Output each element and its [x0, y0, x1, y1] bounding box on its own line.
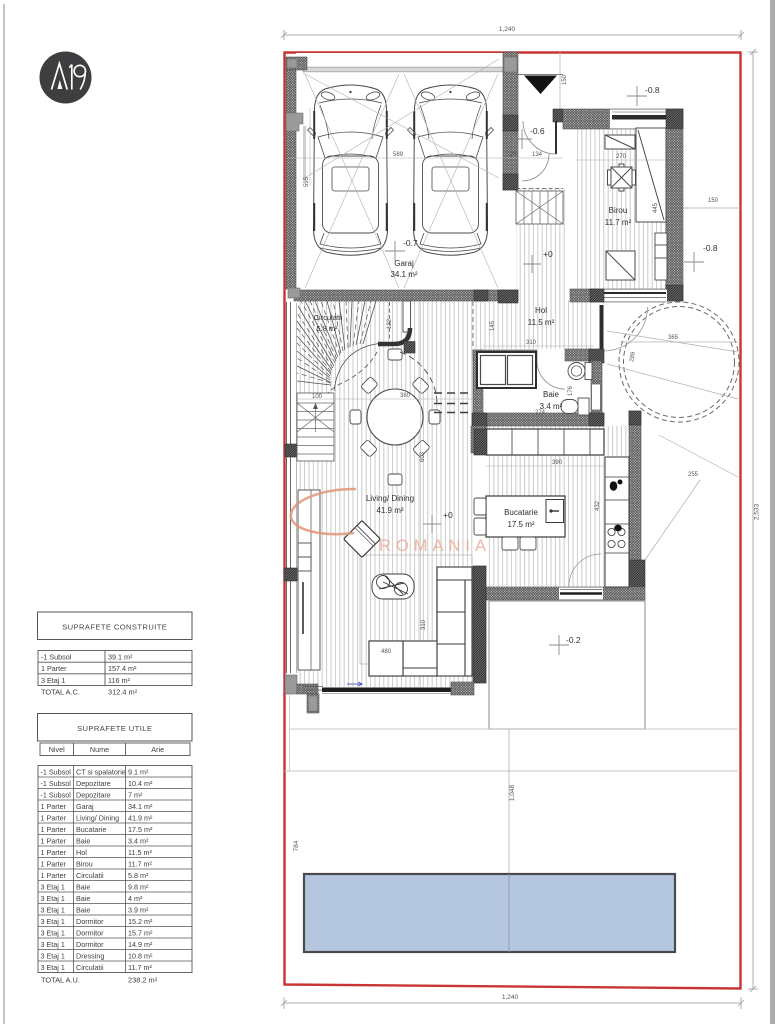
- svg-text:-0.7: -0.7: [403, 238, 418, 248]
- svg-text:Nume: Nume: [90, 745, 109, 754]
- svg-text:-1 Subsol: -1 Subsol: [41, 779, 72, 788]
- svg-text:Dormitor: Dormitor: [76, 928, 104, 937]
- svg-text:11.5 m²: 11.5 m²: [128, 848, 152, 857]
- svg-text:Nivel: Nivel: [49, 745, 65, 754]
- svg-text:3 Etaj 1: 3 Etaj 1: [41, 963, 65, 972]
- svg-text:Hol: Hol: [76, 848, 87, 857]
- svg-text:4 m²: 4 m²: [128, 894, 143, 903]
- svg-text:10.8 m²: 10.8 m²: [128, 951, 153, 960]
- svg-text:Baie: Baie: [76, 894, 90, 903]
- svg-text:3 Etaj 1: 3 Etaj 1: [41, 894, 65, 903]
- svg-text:Circulatii: Circulatii: [76, 963, 104, 972]
- svg-text:100: 100: [312, 394, 323, 400]
- svg-text:15.7 m²: 15.7 m²: [128, 928, 153, 937]
- svg-text:274: 274: [535, 410, 546, 416]
- svg-text:480: 480: [381, 649, 392, 655]
- svg-text:1 Parter: 1 Parter: [41, 859, 67, 868]
- svg-text:41.9 m²: 41.9 m²: [128, 813, 153, 822]
- svg-text:5.8 m²: 5.8 m²: [128, 871, 149, 880]
- svg-text:11.7 m²: 11.7 m²: [605, 218, 632, 227]
- svg-text:TOTAL A.C.: TOTAL A.C.: [41, 688, 80, 697]
- svg-text:1 Parter: 1 Parter: [41, 836, 67, 845]
- svg-text:Garaj: Garaj: [76, 802, 94, 811]
- svg-text:Bucatarie: Bucatarie: [76, 825, 106, 834]
- svg-text:Birou: Birou: [609, 206, 628, 215]
- svg-text:3 Etaj 1: 3 Etaj 1: [41, 940, 65, 949]
- svg-text:Baie: Baie: [543, 390, 560, 399]
- svg-text:238.2 m²: 238.2 m²: [128, 976, 158, 985]
- svg-text:150: 150: [562, 74, 568, 85]
- svg-text:3.9 m²: 3.9 m²: [128, 905, 149, 914]
- svg-text:145: 145: [490, 320, 496, 331]
- svg-text:ROMANIA: ROMANIA: [379, 537, 491, 555]
- svg-text:3 Etaj 1: 3 Etaj 1: [41, 676, 65, 685]
- svg-text:134: 134: [532, 152, 543, 158]
- svg-text:270: 270: [616, 154, 627, 160]
- svg-text:365: 365: [668, 335, 679, 341]
- svg-text:122: 122: [387, 318, 393, 329]
- svg-text:34.1 m²: 34.1 m²: [128, 802, 153, 811]
- svg-text:+0: +0: [443, 510, 453, 520]
- svg-text:7 m²: 7 m²: [128, 790, 143, 799]
- svg-text:Living/ Dining: Living/ Dining: [76, 813, 119, 822]
- svg-text:+0: +0: [543, 249, 553, 259]
- svg-text:3 Etaj 1: 3 Etaj 1: [41, 917, 65, 926]
- svg-text:Hol: Hol: [535, 306, 547, 315]
- svg-text:390: 390: [552, 460, 563, 466]
- svg-text:10.4 m²: 10.4 m²: [128, 779, 153, 788]
- svg-text:-0.6: -0.6: [530, 126, 545, 136]
- svg-text:Depozitare: Depozitare: [76, 790, 111, 799]
- svg-text:176: 176: [568, 385, 574, 396]
- svg-text:3 Etaj 1: 3 Etaj 1: [41, 882, 65, 891]
- svg-text:17.5 m²: 17.5 m²: [128, 825, 153, 834]
- svg-text:3.4 m²: 3.4 m²: [128, 836, 149, 845]
- svg-text:3 Etaj 1: 3 Etaj 1: [41, 951, 65, 960]
- svg-text:3 Etaj 1: 3 Etaj 1: [41, 905, 65, 914]
- svg-text:589: 589: [393, 152, 404, 158]
- svg-text:Depozitare: Depozitare: [76, 779, 111, 788]
- svg-text:20: 20: [510, 152, 517, 158]
- svg-text:-0.8: -0.8: [703, 243, 718, 253]
- svg-text:380: 380: [400, 393, 411, 399]
- svg-text:34.1 m²: 34.1 m²: [390, 270, 417, 279]
- svg-text:445: 445: [653, 202, 659, 213]
- svg-text:-1 Subsol: -1 Subsol: [41, 653, 72, 662]
- svg-text:Baie: Baie: [76, 836, 90, 845]
- svg-text:1,240: 1,240: [502, 994, 519, 1001]
- svg-text:-0.8: -0.8: [645, 85, 660, 95]
- svg-text:1 Parter: 1 Parter: [41, 802, 67, 811]
- svg-text:Living/ Dining: Living/ Dining: [366, 494, 414, 503]
- svg-text:1,240: 1,240: [499, 26, 516, 33]
- svg-text:Circulatii: Circulatii: [314, 313, 343, 322]
- svg-text:TOTAL A.U.: TOTAL A.U.: [41, 976, 80, 985]
- svg-text:Dressing: Dressing: [76, 951, 104, 960]
- svg-text:603: 603: [420, 451, 426, 462]
- svg-text:255: 255: [688, 472, 699, 478]
- svg-text:39.1 m²: 39.1 m²: [108, 653, 133, 662]
- svg-text:Baie: Baie: [76, 905, 90, 914]
- svg-text:432: 432: [595, 500, 601, 511]
- svg-text:157.4 m²: 157.4 m²: [108, 664, 137, 673]
- svg-text:17.5 m²: 17.5 m²: [507, 520, 534, 529]
- svg-text:5.8 m²: 5.8 m²: [316, 324, 338, 333]
- svg-text:310: 310: [421, 619, 427, 630]
- svg-text:Bucatarie: Bucatarie: [504, 508, 538, 517]
- svg-text:SUPRAFETE CONSTRUITE: SUPRAFETE CONSTRUITE: [62, 623, 167, 632]
- svg-text:41.9 m²: 41.9 m²: [376, 506, 403, 515]
- svg-text:15.2 m²: 15.2 m²: [128, 917, 153, 926]
- svg-text:9.8 m²: 9.8 m²: [128, 882, 149, 891]
- svg-text:Circulatii: Circulatii: [76, 871, 104, 880]
- svg-text:312.4 m²: 312.4 m²: [108, 688, 138, 697]
- svg-text:11.5 m²: 11.5 m²: [528, 318, 555, 327]
- svg-text:150: 150: [708, 198, 719, 204]
- svg-text:1 Parter: 1 Parter: [41, 813, 67, 822]
- svg-text:1 Parter: 1 Parter: [41, 848, 67, 857]
- svg-text:11.7 m²: 11.7 m²: [128, 859, 152, 868]
- svg-text:2,533: 2,533: [754, 503, 761, 520]
- svg-text:595: 595: [304, 176, 310, 187]
- svg-text:Baie: Baie: [76, 882, 90, 891]
- svg-text:3 Etaj 1: 3 Etaj 1: [41, 928, 65, 937]
- svg-text:11.7 m²: 11.7 m²: [128, 963, 152, 972]
- svg-text:Garaj: Garaj: [394, 259, 414, 268]
- svg-text:14.9 m²: 14.9 m²: [128, 940, 153, 949]
- svg-text:310: 310: [526, 340, 537, 346]
- svg-text:Birou: Birou: [76, 859, 93, 868]
- svg-text:116 m²: 116 m²: [108, 676, 130, 685]
- svg-text:784: 784: [293, 840, 300, 851]
- svg-text:1,048: 1,048: [509, 784, 516, 801]
- svg-text:CT si spalatorie: CT si spalatorie: [76, 767, 126, 776]
- svg-text:1 Parter: 1 Parter: [41, 825, 67, 834]
- svg-text:-0.2: -0.2: [566, 635, 581, 645]
- svg-text:Dormitor: Dormitor: [76, 940, 104, 949]
- svg-text:Arie: Arie: [151, 745, 164, 754]
- svg-text:9.1 m²: 9.1 m²: [128, 767, 149, 776]
- svg-text:-1 Subsol: -1 Subsol: [41, 790, 72, 799]
- svg-text:Dormitor: Dormitor: [76, 917, 104, 926]
- svg-text:-1 Subsol: -1 Subsol: [41, 767, 72, 776]
- svg-text:1 Parter: 1 Parter: [41, 871, 67, 880]
- svg-text:1 Parter: 1 Parter: [41, 664, 67, 673]
- svg-text:SUPRAFETE UTILE: SUPRAFETE UTILE: [77, 724, 152, 733]
